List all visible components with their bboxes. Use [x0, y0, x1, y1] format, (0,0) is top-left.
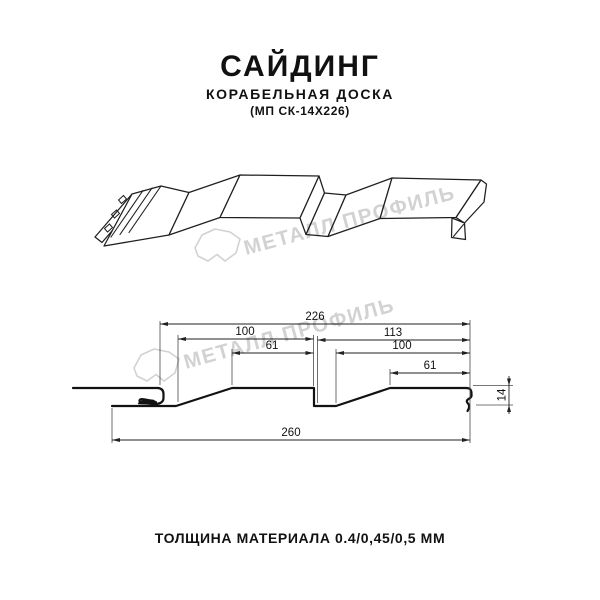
product-spec-sheet: САЙДИНГ КОРАБЕЛЬНАЯ ДОСКА (МП СК-14Х226) — [0, 0, 600, 600]
dim-profile-height: 14 — [497, 388, 509, 401]
watermark-lower: МЕТАЛЛ ПРОФИЛЬ — [134, 293, 397, 381]
brand-watermark-text: МЕТАЛЛ ПРОФИЛЬ — [181, 293, 397, 373]
technical-drawing: 226 100 61 113 100 61 260 14 МЕТАЛЛ ПРОФ… — [0, 0, 600, 600]
brand-logo-icon — [195, 229, 240, 261]
brand-logo-icon — [134, 349, 179, 381]
dim-total-width: 260 — [281, 427, 300, 439]
dim-right-pitch: 113 — [384, 327, 402, 339]
section-end-curl — [466, 388, 472, 411]
thickness-note: ТОЛЩИНА МАТЕРИАЛА 0.4/0,45/0,5 ММ — [0, 531, 600, 545]
cross-section-view — [73, 388, 472, 411]
dim-right-flat: 61 — [424, 360, 437, 372]
section-profile-outline — [112, 388, 466, 406]
dim-right-inner: 100 — [392, 340, 411, 352]
